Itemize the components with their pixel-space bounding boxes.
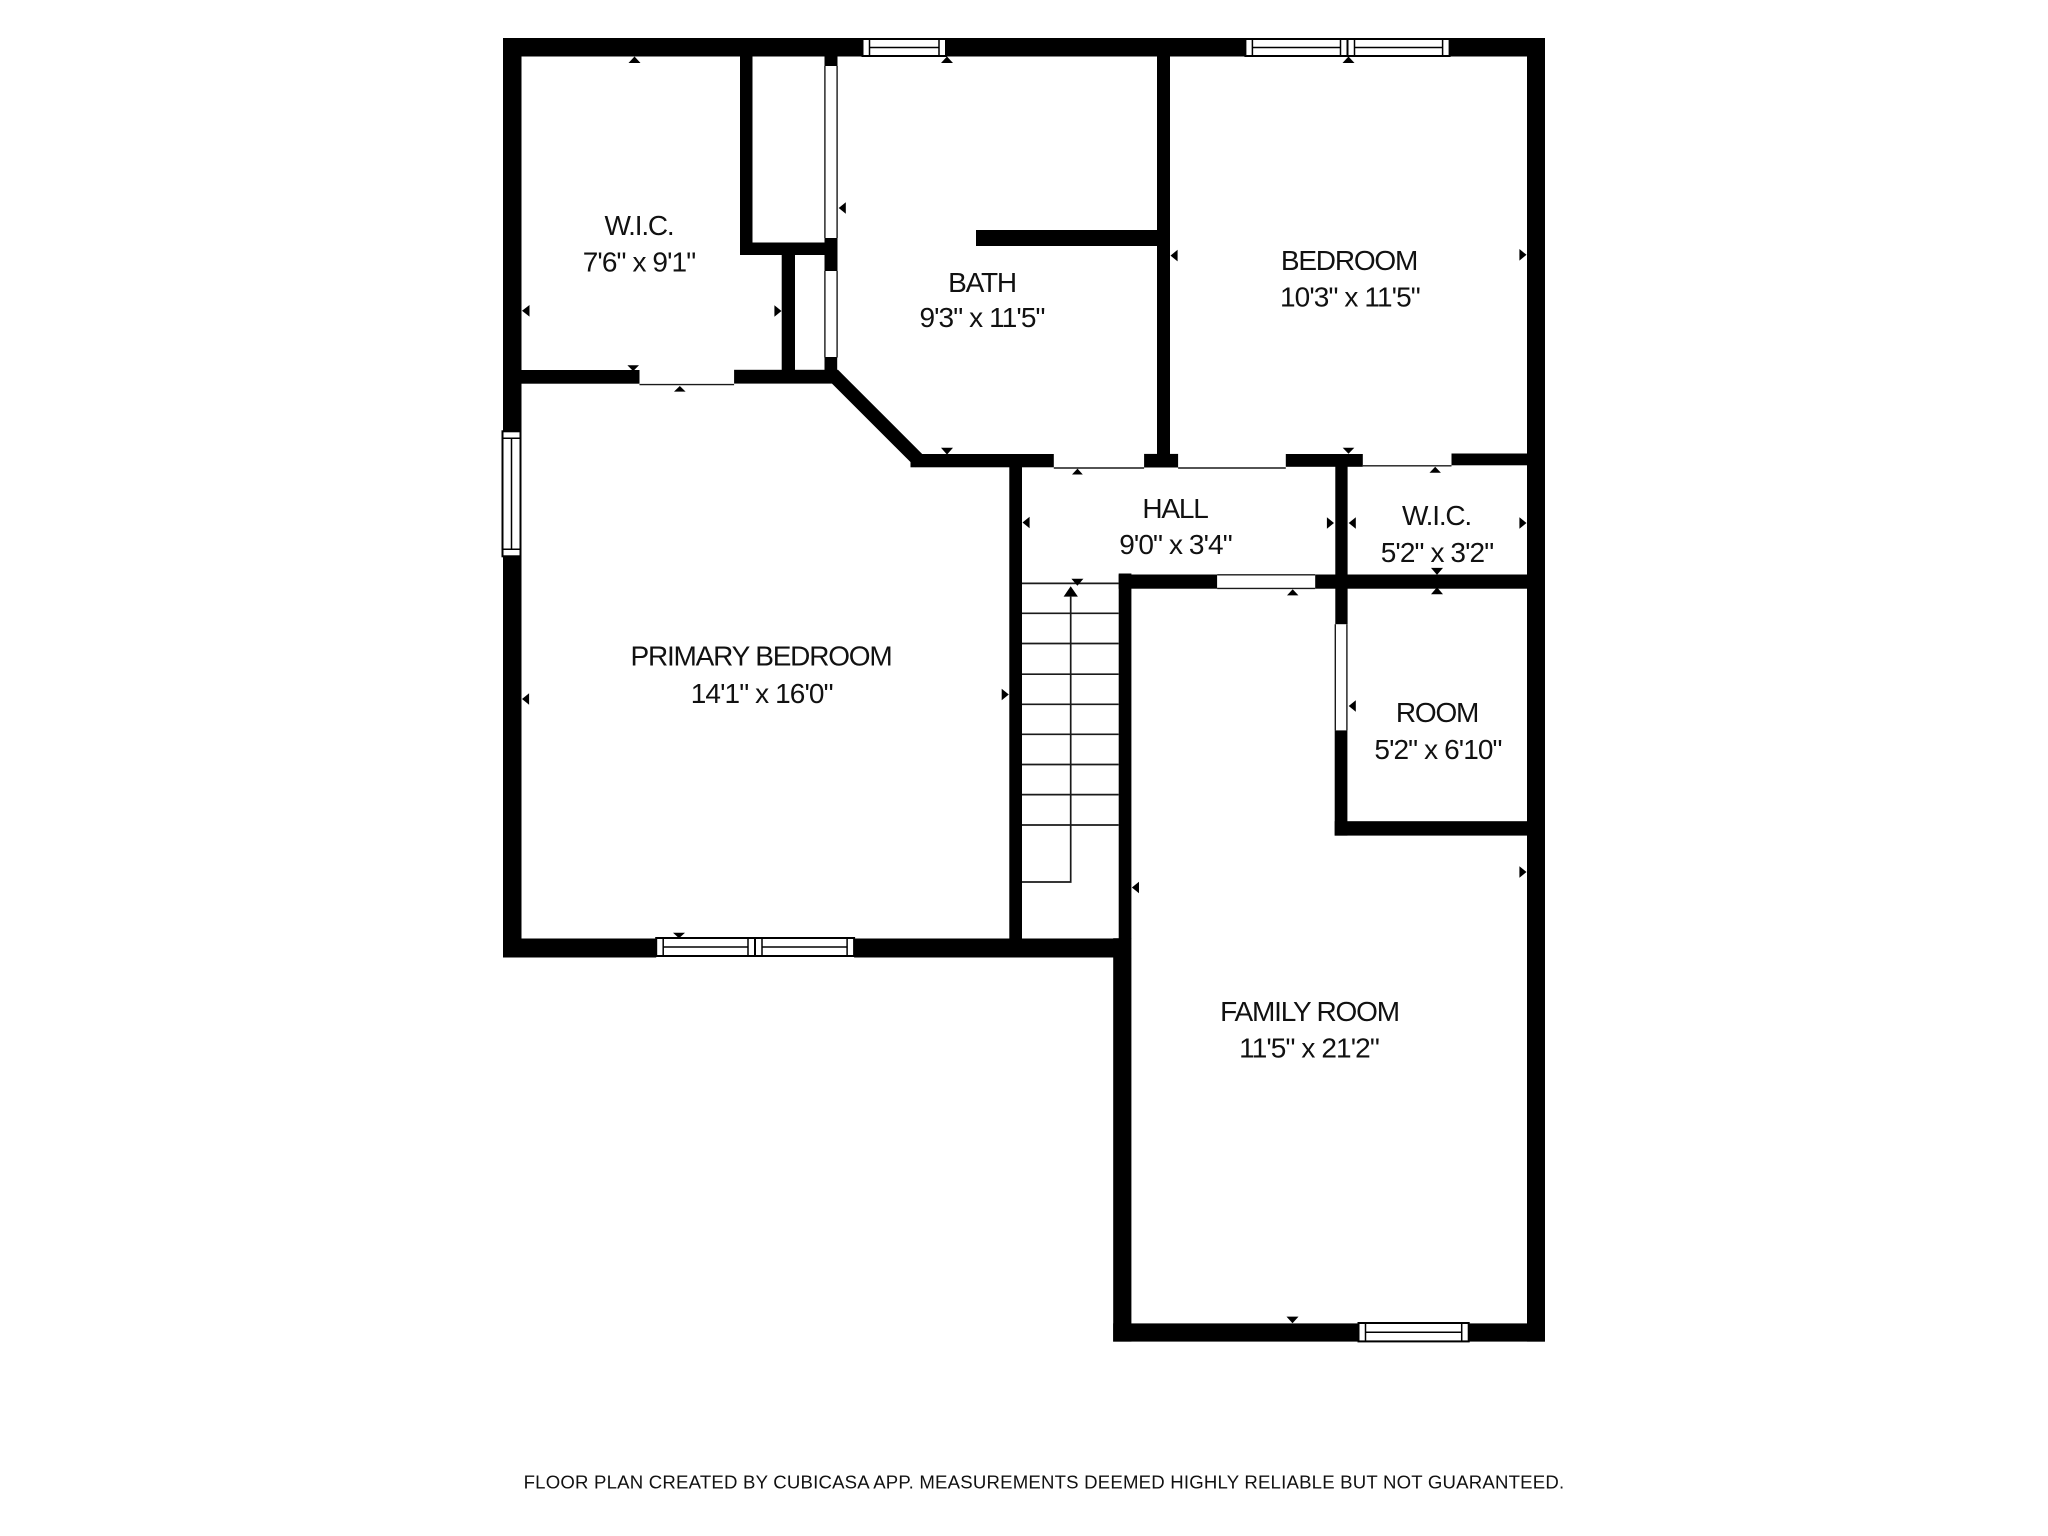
svg-text:BEDROOM: BEDROOM xyxy=(1281,245,1417,276)
svg-text:11'5" x 21'2": 11'5" x 21'2" xyxy=(1239,1033,1379,1064)
svg-text:FAMILY ROOM: FAMILY ROOM xyxy=(1220,996,1399,1027)
svg-text:10'3" x 11'5": 10'3" x 11'5" xyxy=(1280,282,1420,313)
svg-text:FLOOR PLAN CREATED BY CUBICASA: FLOOR PLAN CREATED BY CUBICASA APP. MEAS… xyxy=(524,1472,1565,1493)
svg-text:7'6" x 9'1": 7'6" x 9'1" xyxy=(583,247,696,278)
svg-text:BATH: BATH xyxy=(948,267,1016,298)
svg-text:W.I.C.: W.I.C. xyxy=(604,210,673,241)
svg-text:ROOM: ROOM xyxy=(1396,697,1478,728)
svg-text:W.I.C.: W.I.C. xyxy=(1402,500,1471,531)
svg-text:14'1" x 16'0": 14'1" x 16'0" xyxy=(691,678,833,709)
svg-text:5'2" x 3'2": 5'2" x 3'2" xyxy=(1381,537,1494,568)
svg-text:5'2" x 6'10": 5'2" x 6'10" xyxy=(1374,734,1501,765)
svg-text:PRIMARY BEDROOM: PRIMARY BEDROOM xyxy=(630,641,891,672)
svg-text:9'0" x 3'4": 9'0" x 3'4" xyxy=(1119,529,1232,560)
svg-text:9'3" x 11'5": 9'3" x 11'5" xyxy=(919,302,1044,333)
svg-text:HALL: HALL xyxy=(1142,493,1208,524)
